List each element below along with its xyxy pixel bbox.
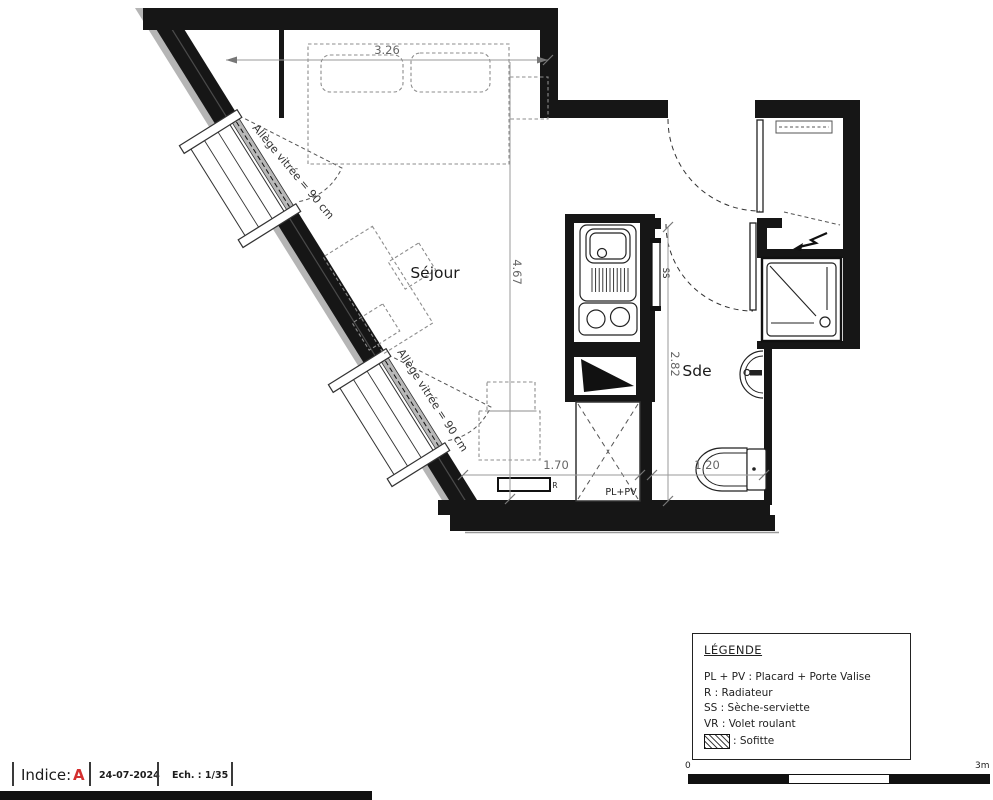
entry-door-leaf	[757, 120, 763, 212]
plan-scale: Ech. : 1/35	[172, 770, 228, 781]
hatch-swatch-icon	[704, 734, 730, 749]
closet-pl-pv: PL+PV	[576, 402, 640, 501]
scale-bar	[688, 774, 990, 784]
bed	[308, 44, 509, 164]
water-heater-icon	[793, 233, 827, 251]
legend-box: LÉGENDE PL + PV : Placard + Porte Valise…	[692, 633, 911, 760]
dim-bottom-right: 1.20	[694, 458, 720, 472]
scalebar-segment	[788, 775, 889, 783]
separator	[231, 762, 233, 786]
radiator: R	[498, 478, 558, 491]
indice-label: Indice:	[21, 766, 71, 784]
room-label-sejour: Séjour	[410, 264, 460, 282]
top-right-connector-wall	[540, 8, 558, 118]
flush-button	[752, 467, 756, 471]
scalebar-end-label: 3m	[975, 761, 990, 771]
kitchen-sde-partition	[640, 214, 652, 505]
closet-label: PL+PV	[605, 487, 637, 498]
pillow	[411, 53, 490, 92]
separator	[89, 762, 91, 786]
kitchenette	[574, 223, 640, 342]
bottom-wall	[438, 500, 770, 515]
dim-bottom-left: 1.70	[543, 458, 569, 472]
legend-entry-sofitte: : Sofitte	[704, 734, 910, 750]
shower	[762, 258, 841, 341]
legend-title: LÉGENDE	[704, 643, 910, 657]
legend-entry-volet-roulant: VR : Volet roulant	[704, 717, 910, 733]
page-edge-strip	[0, 791, 372, 800]
bottom-wall-outer	[450, 515, 775, 531]
floorplan-page: PL+PV SS	[0, 0, 993, 800]
wall-below-shower	[757, 341, 860, 349]
sde-door-leaf	[750, 223, 756, 310]
sde-door	[666, 223, 756, 311]
room-label-sde: Sde	[682, 362, 711, 380]
separator	[157, 762, 159, 786]
indice-value: A	[73, 766, 85, 784]
dim-living-height: 4.67	[510, 259, 524, 285]
legend-entry-seche-serviette: SS : Sèche-serviette	[704, 701, 910, 717]
technical-closet-swing	[784, 212, 840, 225]
top-wall-stub	[279, 30, 284, 118]
right-wall	[843, 100, 860, 349]
scalebar-segment	[689, 775, 788, 783]
entry-door	[668, 119, 763, 212]
sde-door-right-stub-v	[757, 218, 767, 251]
scalebar-segment	[890, 775, 989, 783]
entry-door-swing	[668, 119, 760, 211]
dim-sde-height: 2.82	[668, 351, 682, 377]
entry-wall-left	[558, 100, 668, 118]
separator	[12, 762, 14, 786]
top-wall	[143, 8, 558, 30]
fridge-unit	[574, 357, 636, 395]
washbasin	[740, 351, 763, 398]
towel-radiator	[650, 238, 661, 311]
title-bar: Indice: A 24-07-2024 Ech. : 1/35	[0, 758, 400, 792]
dim-top-width: 3.26	[374, 43, 400, 57]
sde-door-swing	[666, 224, 753, 311]
entry-shelf	[776, 121, 832, 133]
legend-entry-pl-pv: PL + PV : Placard + Porte Valise	[704, 670, 910, 686]
toilet-tank	[747, 449, 766, 490]
pillow	[321, 55, 403, 92]
scalebar-start-label: 0	[685, 761, 691, 771]
legend-entry-radiateur: R : Radiateur	[704, 686, 910, 702]
sde-door-left-jamb	[652, 218, 661, 229]
plan-date: 24-07-2024	[99, 770, 160, 781]
legend-sofitte-label: : Sofitte	[733, 734, 774, 750]
radiator-label: R	[552, 481, 557, 490]
